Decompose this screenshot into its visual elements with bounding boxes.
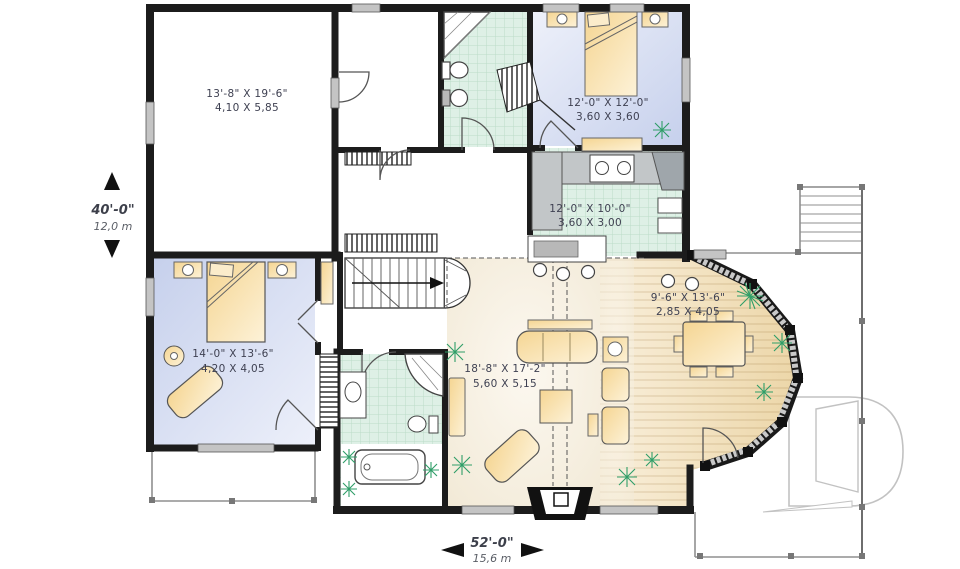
- peninsula-counter: [534, 241, 578, 257]
- sink-upper-counter: [442, 90, 450, 106]
- kitchen-dim-metric: 3,60 X 3,00: [558, 217, 622, 229]
- bay-top-window: [694, 250, 726, 259]
- floor-plan-drawing: 13'-8" X 19'-6" 4,10 X 5,85 12'-0" X 12'…: [0, 0, 960, 569]
- sink-upper: [451, 90, 468, 107]
- plant-tub-3: [423, 462, 439, 478]
- plant-bedroom: [653, 121, 671, 139]
- vestibule-window: [352, 4, 380, 12]
- wall-oven-2: [658, 218, 682, 233]
- plant-living-1: [445, 342, 465, 362]
- kitchen-dim-imperial: 12'-0" X 10'-0": [549, 203, 630, 215]
- dimension-depth: 40'-0" 12,0 m: [90, 172, 134, 258]
- toilet-master-tank: [429, 416, 438, 433]
- garage-dim-metric: 4,10 X 5,85: [215, 102, 279, 114]
- garage-dim-imperial: 13'-8" X 19'-6": [206, 88, 287, 100]
- plant-tub-1: [341, 449, 357, 465]
- master-dim-metric: 4,20 X 4,05: [201, 363, 265, 375]
- master-front-window: [198, 444, 274, 452]
- coffee-table: [540, 390, 572, 423]
- arrow-up-icon: [104, 172, 120, 190]
- bathtub-faucet: [364, 464, 370, 470]
- ottoman-center: [171, 353, 178, 360]
- deck-stairs: [800, 187, 862, 253]
- master-pillow: [210, 263, 234, 277]
- lamp-1: [557, 14, 567, 24]
- garage-house-door: [331, 78, 339, 108]
- bedroom-upper-dim-metric: 3,60 X 3,60: [576, 111, 640, 123]
- depth-metric: 12,0 m: [94, 220, 133, 233]
- console-table: [528, 320, 592, 329]
- master-lamp-1: [183, 265, 194, 276]
- bedroom-upper-window-2: [610, 4, 644, 12]
- armchair-1: [602, 368, 629, 401]
- entry-closet: [345, 152, 411, 165]
- table-lamp: [608, 342, 622, 356]
- depth-imperial: 40'-0": [90, 203, 134, 218]
- vanity-sink: [345, 382, 361, 402]
- garage-window: [146, 102, 154, 144]
- dining-dim-imperial: 9'-6" X 13'-6": [651, 292, 725, 304]
- media-console: [449, 378, 465, 436]
- dining-dim-metric: 2,85 X 4,05: [656, 306, 720, 318]
- dining-table: [683, 322, 745, 366]
- veranda-rail: [152, 450, 315, 501]
- armchair-2: [602, 407, 629, 444]
- burner-1: [596, 162, 609, 175]
- plant-living-4: [644, 452, 660, 468]
- sofa: [517, 331, 597, 363]
- toilet-upper-bowl: [450, 62, 468, 78]
- plant-nook-3: [755, 383, 773, 401]
- plant-nook-2: [772, 333, 792, 353]
- floor-plan-page: 13'-8" X 19'-6" 4,10 X 5,85 12'-0" X 12'…: [0, 0, 960, 569]
- master-closet: [320, 354, 338, 428]
- plant-living-2: [452, 455, 472, 475]
- living-dim-metric: 5,60 X 5,15: [473, 378, 537, 390]
- toilet-upper-tank: [442, 62, 450, 79]
- bedroom-upper-dim-imperial: 12'-0" X 12'-0": [567, 97, 648, 109]
- lamp-2: [650, 14, 660, 24]
- bedroom-upper-side-window: [682, 58, 690, 102]
- vestibule-floor: [338, 11, 440, 147]
- toilet-master-bowl: [408, 416, 426, 432]
- wall-oven-1: [658, 198, 682, 213]
- living-window-1: [462, 506, 514, 514]
- dimension-width: 52'-0" 15,6 m: [441, 536, 544, 565]
- dresser-upper: [582, 138, 642, 151]
- side-table: [588, 414, 598, 436]
- master-dim-imperial: 14'-0" X 13'-6": [192, 348, 273, 360]
- burner-2: [618, 162, 631, 175]
- logo-door: [816, 401, 858, 492]
- veranda: [152, 450, 315, 501]
- fireplace-box: [554, 493, 568, 506]
- hall-closet: [345, 234, 437, 252]
- hall-cabinet: [321, 262, 333, 304]
- stairs: [345, 258, 470, 308]
- arrow-left-icon: [441, 543, 464, 557]
- garage-floor: [154, 11, 332, 253]
- master-side-window: [146, 278, 154, 316]
- living-window-2: [600, 506, 658, 514]
- arrow-down-icon: [104, 240, 120, 258]
- width-imperial: 52'-0": [470, 536, 513, 551]
- living-dim-imperial: 18'-8" X 17'-2": [464, 363, 545, 375]
- plant-nook-1: [737, 283, 763, 309]
- pillow-1: [587, 13, 609, 27]
- plant-tub-2: [341, 481, 357, 497]
- width-metric: 15,6 m: [473, 552, 512, 565]
- plant-living-3: [617, 467, 637, 487]
- arrow-right-icon: [521, 543, 544, 557]
- master-lamp-2: [277, 265, 288, 276]
- bedroom-upper-window-1: [543, 4, 579, 12]
- fireplace: [527, 487, 593, 520]
